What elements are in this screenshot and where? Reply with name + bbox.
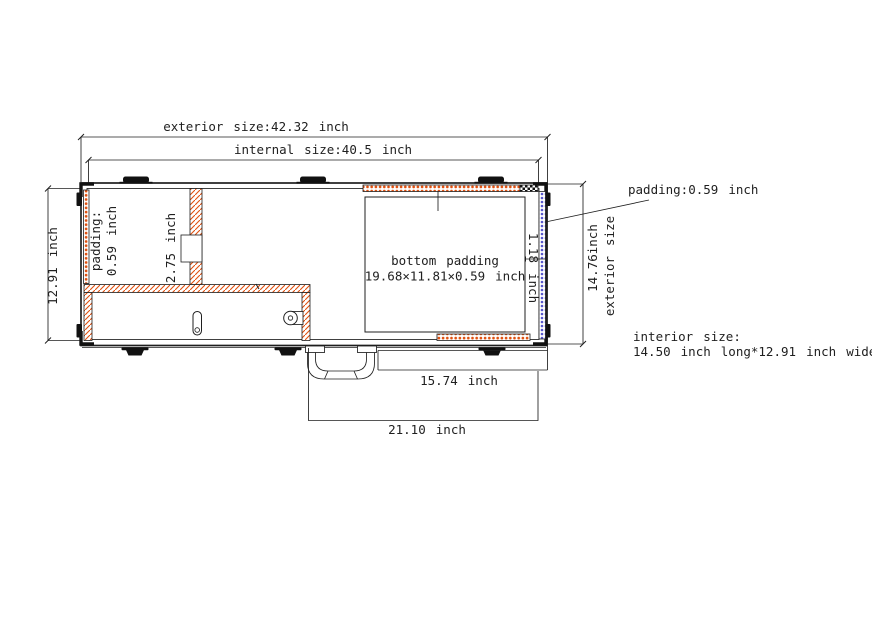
internal-width-label: internal size:40.5 inch: [234, 142, 412, 157]
side-tab: [77, 193, 83, 207]
bottom-padding-label-line2: 19.68×11.81×0.59 inch: [365, 269, 526, 284]
interior-size-label-line2: 14.50 inch long*12.91 inch wide: [633, 344, 872, 359]
handle-mount-right: [358, 346, 377, 353]
latch-pin-inner: [288, 316, 292, 320]
padding-callout-leader: [546, 200, 650, 222]
technical-drawing-page: exterior size:42.32 inch internal size:4…: [0, 0, 872, 632]
top-latch: [120, 177, 153, 184]
right-interior-section: bottom padding 19.68×11.81×0.59 inch 1.1…: [363, 185, 546, 341]
dimension-handle-side: 15.74 inch: [378, 351, 548, 389]
left-height-label: 12.91 inch: [45, 227, 60, 305]
side-tab: [77, 324, 83, 338]
dimension-left-height: 12.91 inch: [45, 186, 81, 344]
bottom-foot: [122, 347, 149, 355]
top-padding-strip: [363, 185, 520, 192]
bottom-foot: [479, 347, 506, 355]
side-padding-label-line2: 0.59 inch: [104, 206, 119, 276]
exterior-width-label: exterior size:42.32 inch: [163, 119, 349, 134]
slot-pin: [195, 328, 200, 333]
horizontal-divider-bar: [84, 285, 310, 293]
top-latch: [297, 177, 330, 184]
bottom-length-label: 21.10 inch: [388, 422, 466, 437]
interior-size-label-line1: interior size:: [633, 329, 741, 344]
divider-width-label: 2.75 inch: [163, 213, 178, 283]
carry-handle: [306, 346, 377, 379]
compartment-left-wall: [84, 293, 92, 341]
dimension-exterior-height: 14.76inch exterior size: [547, 181, 618, 347]
divider-slot: [181, 235, 202, 262]
bottom-padding-strip: [437, 334, 530, 341]
top-latch: [475, 177, 508, 184]
handle-grip-inner: [316, 353, 367, 372]
bottom-foot: [275, 347, 302, 355]
exterior-height-label-line2: exterior size: [602, 216, 617, 316]
dimension-bottom-length: 21.10 inch: [309, 348, 539, 437]
exterior-height-label-line1: 14.76inch: [585, 224, 600, 292]
handle-side-length-label: 15.74 inch: [420, 373, 498, 388]
edge-padding-label: 1.18 inch: [526, 233, 541, 303]
handle-grip-outer: [308, 353, 375, 380]
technical-drawing-canvas: exterior size:42.32 inch internal size:4…: [0, 0, 872, 632]
top-checker-strip: [520, 185, 538, 192]
side-padding-label-line1: padding:: [88, 211, 103, 271]
padding-callout-label: padding:0.59 inch: [628, 182, 758, 197]
bottom-padding-label-line1: bottom padding: [391, 253, 499, 268]
